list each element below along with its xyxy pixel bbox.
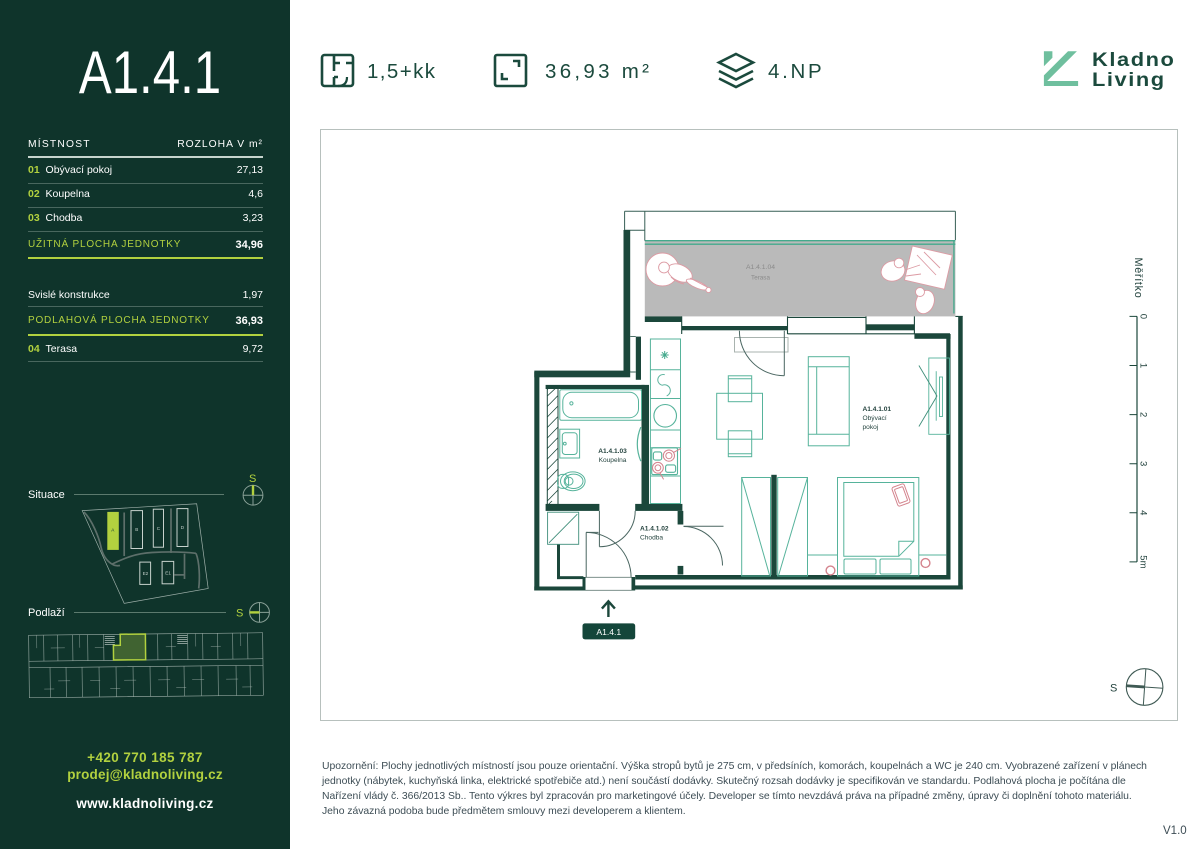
svg-text:A1.4.1.02: A1.4.1.02	[640, 526, 669, 533]
svg-text:E1: E1	[165, 571, 171, 576]
svg-text:A1.4.1.03: A1.4.1.03	[598, 448, 627, 455]
svg-text:Koupelna: Koupelna	[599, 457, 627, 464]
svg-text:Měřítko: Měřítko	[1132, 258, 1144, 299]
svg-text:Chodba: Chodba	[640, 535, 663, 542]
svg-text:1: 1	[1138, 363, 1149, 368]
svg-text:S: S	[236, 608, 243, 620]
svg-text:C: C	[157, 526, 161, 531]
svg-text:2: 2	[1138, 412, 1149, 417]
svg-text:5m: 5m	[1138, 555, 1149, 568]
svg-text:Obývací: Obývací	[863, 415, 887, 422]
svg-text:Terasa: Terasa	[751, 275, 770, 282]
svg-text:4: 4	[1138, 510, 1149, 515]
svg-text:S: S	[1110, 683, 1117, 695]
svg-text:E2: E2	[143, 571, 149, 576]
svg-text:0: 0	[1138, 314, 1149, 319]
svg-text:3: 3	[1138, 461, 1149, 466]
svg-text:A1.4.1.04: A1.4.1.04	[746, 264, 775, 271]
svg-text:A1.4.1.01: A1.4.1.01	[863, 406, 892, 413]
svg-text:pokoj: pokoj	[863, 424, 879, 431]
svg-text:B: B	[135, 527, 138, 532]
svg-text:D: D	[181, 525, 185, 530]
svg-text:S: S	[249, 473, 256, 485]
svg-text:A1.4.1: A1.4.1	[596, 627, 621, 637]
